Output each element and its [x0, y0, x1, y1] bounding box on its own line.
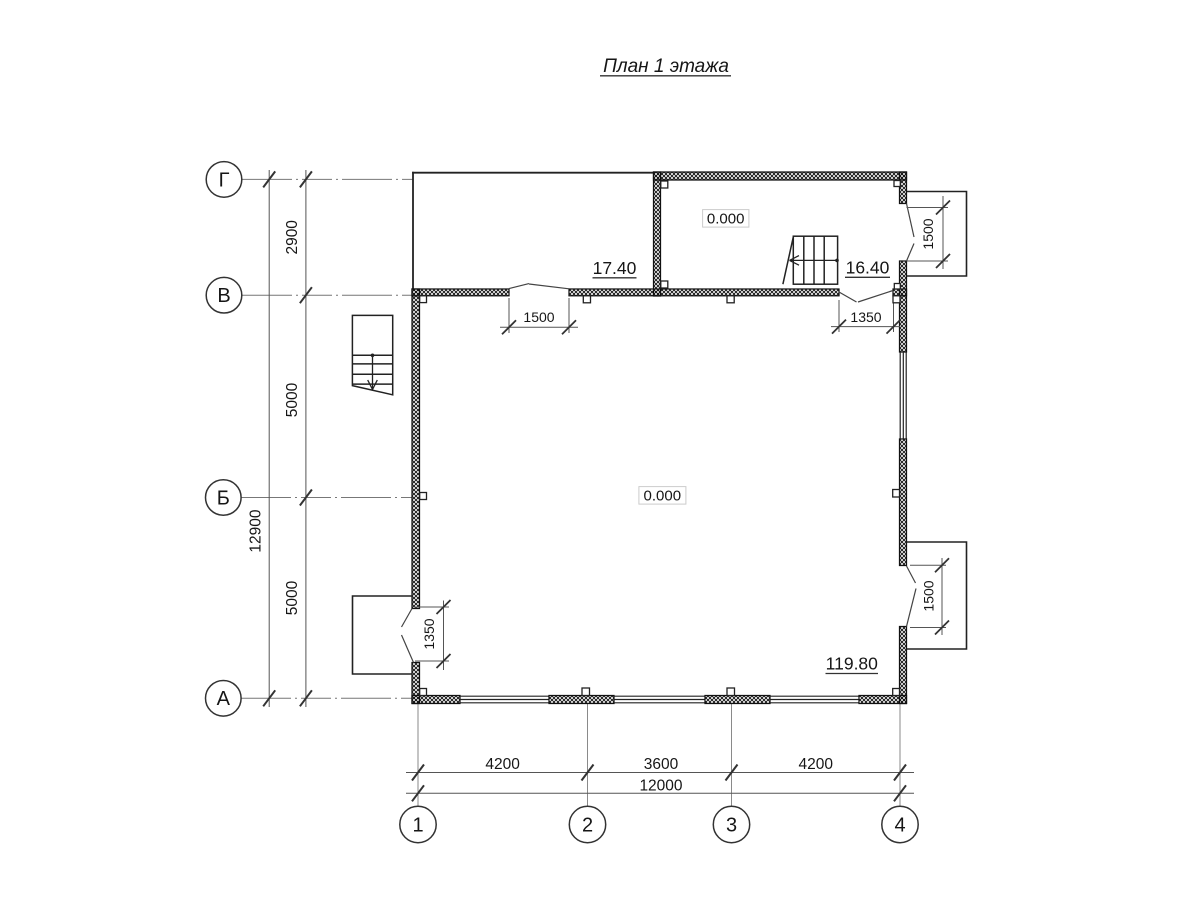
svg-text:1350: 1350 — [421, 618, 437, 649]
svg-text:1500: 1500 — [523, 309, 554, 325]
svg-text:План 1 этажа: План 1 этажа — [603, 56, 729, 77]
svg-text:0.000: 0.000 — [644, 488, 682, 505]
svg-text:4: 4 — [894, 815, 905, 837]
svg-text:1500: 1500 — [920, 218, 936, 249]
svg-text:В: В — [217, 285, 230, 307]
svg-text:17.40: 17.40 — [593, 258, 637, 278]
svg-text:12900: 12900 — [248, 509, 265, 552]
svg-text:119.80: 119.80 — [826, 654, 878, 674]
svg-text:3: 3 — [726, 815, 737, 837]
svg-text:5000: 5000 — [284, 382, 301, 417]
svg-text:2: 2 — [582, 815, 593, 837]
svg-text:4200: 4200 — [799, 756, 834, 773]
svg-text:12000: 12000 — [639, 777, 682, 794]
svg-text:Г: Г — [219, 169, 230, 191]
svg-text:16.40: 16.40 — [846, 257, 890, 277]
svg-text:2900: 2900 — [284, 220, 301, 255]
svg-text:А: А — [217, 688, 231, 710]
svg-text:5000: 5000 — [284, 580, 301, 615]
svg-text:1350: 1350 — [850, 309, 881, 325]
svg-text:Б: Б — [217, 487, 230, 509]
svg-text:4200: 4200 — [485, 756, 520, 773]
svg-text:1500: 1500 — [921, 580, 937, 611]
svg-text:3600: 3600 — [644, 756, 679, 773]
svg-text:0.000: 0.000 — [707, 211, 745, 228]
svg-text:1: 1 — [412, 815, 423, 837]
